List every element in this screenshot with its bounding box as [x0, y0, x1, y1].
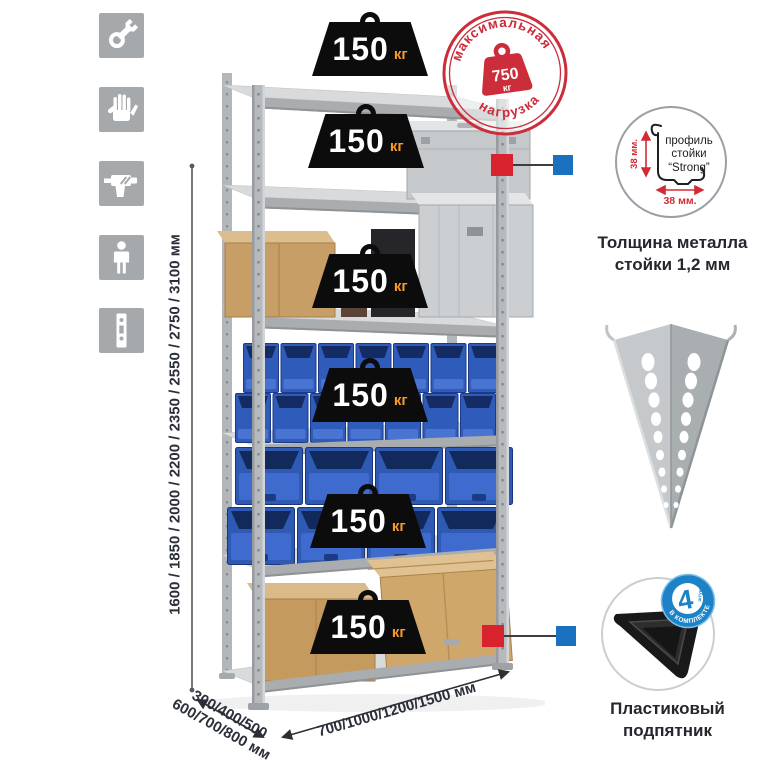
shelf-load-badge: 150кг — [310, 590, 426, 656]
profile-label: стойки — [671, 148, 706, 160]
post-profile-image — [598, 300, 744, 532]
height-dimension-label: 1600 / 1850 / 2000 / 2200 / 2350 / 2550 … — [167, 155, 184, 695]
foot-caption: Пластиковый подпятник — [590, 698, 745, 742]
foot-callout-line — [504, 635, 556, 637]
shelf-load-badge: 150кг — [312, 244, 428, 310]
foot-plate — [444, 639, 460, 645]
shelf-load-badge: 150кг — [312, 12, 428, 78]
foot-callout-marker-red — [482, 625, 504, 647]
profile-dim-vertical: 38 мм. — [629, 139, 640, 169]
tile-wrench — [99, 13, 144, 58]
drill-icon — [99, 161, 144, 206]
max-load-stamp: максимальная нагрузка 750 кг — [437, 5, 573, 141]
gloves-icon — [99, 87, 144, 132]
profile-callout-line — [513, 164, 553, 166]
profile-dim-horizontal: 38 мм. — [663, 195, 696, 207]
profile-callout-marker-blue — [553, 155, 573, 175]
shelf-load-badge: 150кг — [308, 104, 424, 170]
aluminium-case-large — [411, 193, 533, 317]
profile-caption: Толщина металла стойки 1,2 мм — [585, 232, 760, 276]
profile-detail-circle: 38 мм. 38 мм. профиль стойки “Strong” — [608, 102, 734, 228]
tile-person — [99, 235, 144, 280]
wrench-icon — [99, 13, 144, 58]
profile-label: профиль — [665, 135, 713, 147]
shelf-load-badge: 150кг — [312, 358, 428, 424]
person-icon — [99, 235, 144, 280]
tile-post-profile — [99, 308, 144, 353]
stamp-weight-unit: кг — [502, 82, 512, 94]
post-profile-icon — [99, 308, 144, 353]
foot-callout-marker-blue — [556, 626, 576, 646]
profile-callout-marker-red — [491, 154, 513, 176]
tile-gloves — [99, 87, 144, 132]
shelf-load-badge: 150кг — [310, 484, 426, 550]
tile-drill — [99, 161, 144, 206]
profile-label: “Strong” — [668, 162, 710, 174]
shelving-infographic: 1600 / 1850 / 2000 / 2200 / 2350 / 2550 … — [0, 0, 765, 765]
foot-count-badge: 4 штуки в комплекте — [659, 572, 717, 630]
